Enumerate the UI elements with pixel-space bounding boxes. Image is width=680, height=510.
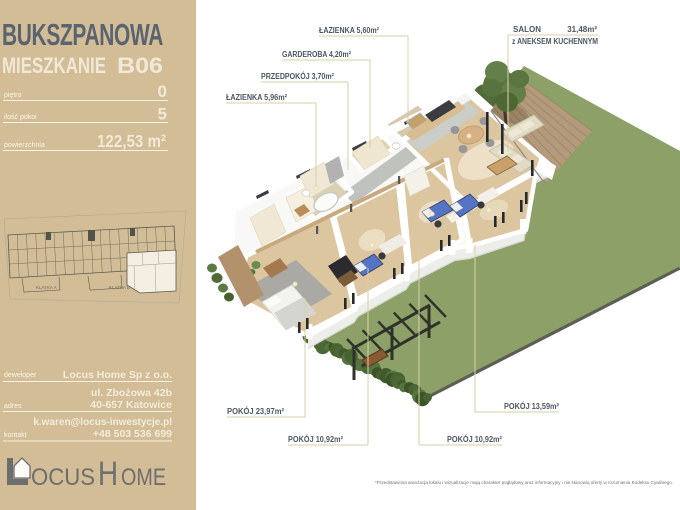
svg-text:31,48m²: 31,48m² (567, 25, 597, 34)
svg-text:H: H (98, 455, 118, 493)
svg-text:B06: B06 (117, 53, 163, 78)
svg-text:KLATKA B: KLATKA B (109, 285, 130, 290)
svg-text:Locus Home Sp z o.o.: Locus Home Sp z o.o. (63, 369, 172, 381)
svg-text:ilość pokoi: ilość pokoi (4, 114, 37, 121)
svg-text:POKÓJ 10,92m²: POKÓJ 10,92m² (447, 435, 502, 444)
svg-text:ŁAZIENKA 5,96m²: ŁAZIENKA 5,96m² (226, 93, 287, 102)
svg-text:powierzchnia: powierzchnia (4, 142, 45, 149)
svg-text:ŁAZIENKA 5,60m²: ŁAZIENKA 5,60m² (319, 26, 379, 35)
svg-text:POKÓJ 23,97m²: POKÓJ 23,97m² (227, 407, 284, 416)
svg-text:SALON: SALON (513, 25, 541, 34)
svg-text:deweloper: deweloper (4, 372, 37, 379)
svg-text:OCUS: OCUS (31, 464, 95, 491)
svg-text:+48 503 536 699: +48 503 536 699 (93, 428, 172, 440)
svg-text:OME: OME (121, 464, 166, 491)
svg-text:40-657 Katowice: 40-657 Katowice (90, 399, 172, 411)
svg-text:POKÓJ 13,59m²: POKÓJ 13,59m² (504, 402, 559, 411)
svg-text:kontakt: kontakt (4, 432, 27, 439)
svg-text:MIESZKANIE: MIESZKANIE (2, 53, 106, 78)
svg-text:BUKSZPANOWA: BUKSZPANOWA (2, 17, 163, 52)
svg-text:*Przedstawiona aranżacja lokal: *Przedstawiona aranżacja lokalu i wizual… (375, 480, 673, 486)
svg-text:PRZEDPOKÓJ 3,70m²: PRZEDPOKÓJ 3,70m² (261, 72, 334, 81)
svg-text:POKÓJ 10,92m²: POKÓJ 10,92m² (288, 435, 343, 444)
svg-text:z ANEKSEM KUCHENNYM: z ANEKSEM KUCHENNYM (512, 37, 598, 46)
svg-text:KLATKA A: KLATKA A (36, 285, 57, 290)
svg-text:122,53 m²: 122,53 m² (97, 131, 166, 151)
svg-text:adres: adres (4, 403, 22, 410)
svg-text:ul. Zbożowa 42b: ul. Zbożowa 42b (91, 387, 172, 399)
svg-text:k.waren@locus-inwestycje.pl: k.waren@locus-inwestycje.pl (33, 417, 172, 428)
svg-text:5: 5 (158, 105, 167, 124)
svg-text:piętro: piętro (4, 92, 22, 99)
svg-text:GARDEROBA 4,20m²: GARDEROBA 4,20m² (282, 50, 351, 59)
svg-text:0: 0 (158, 82, 167, 101)
